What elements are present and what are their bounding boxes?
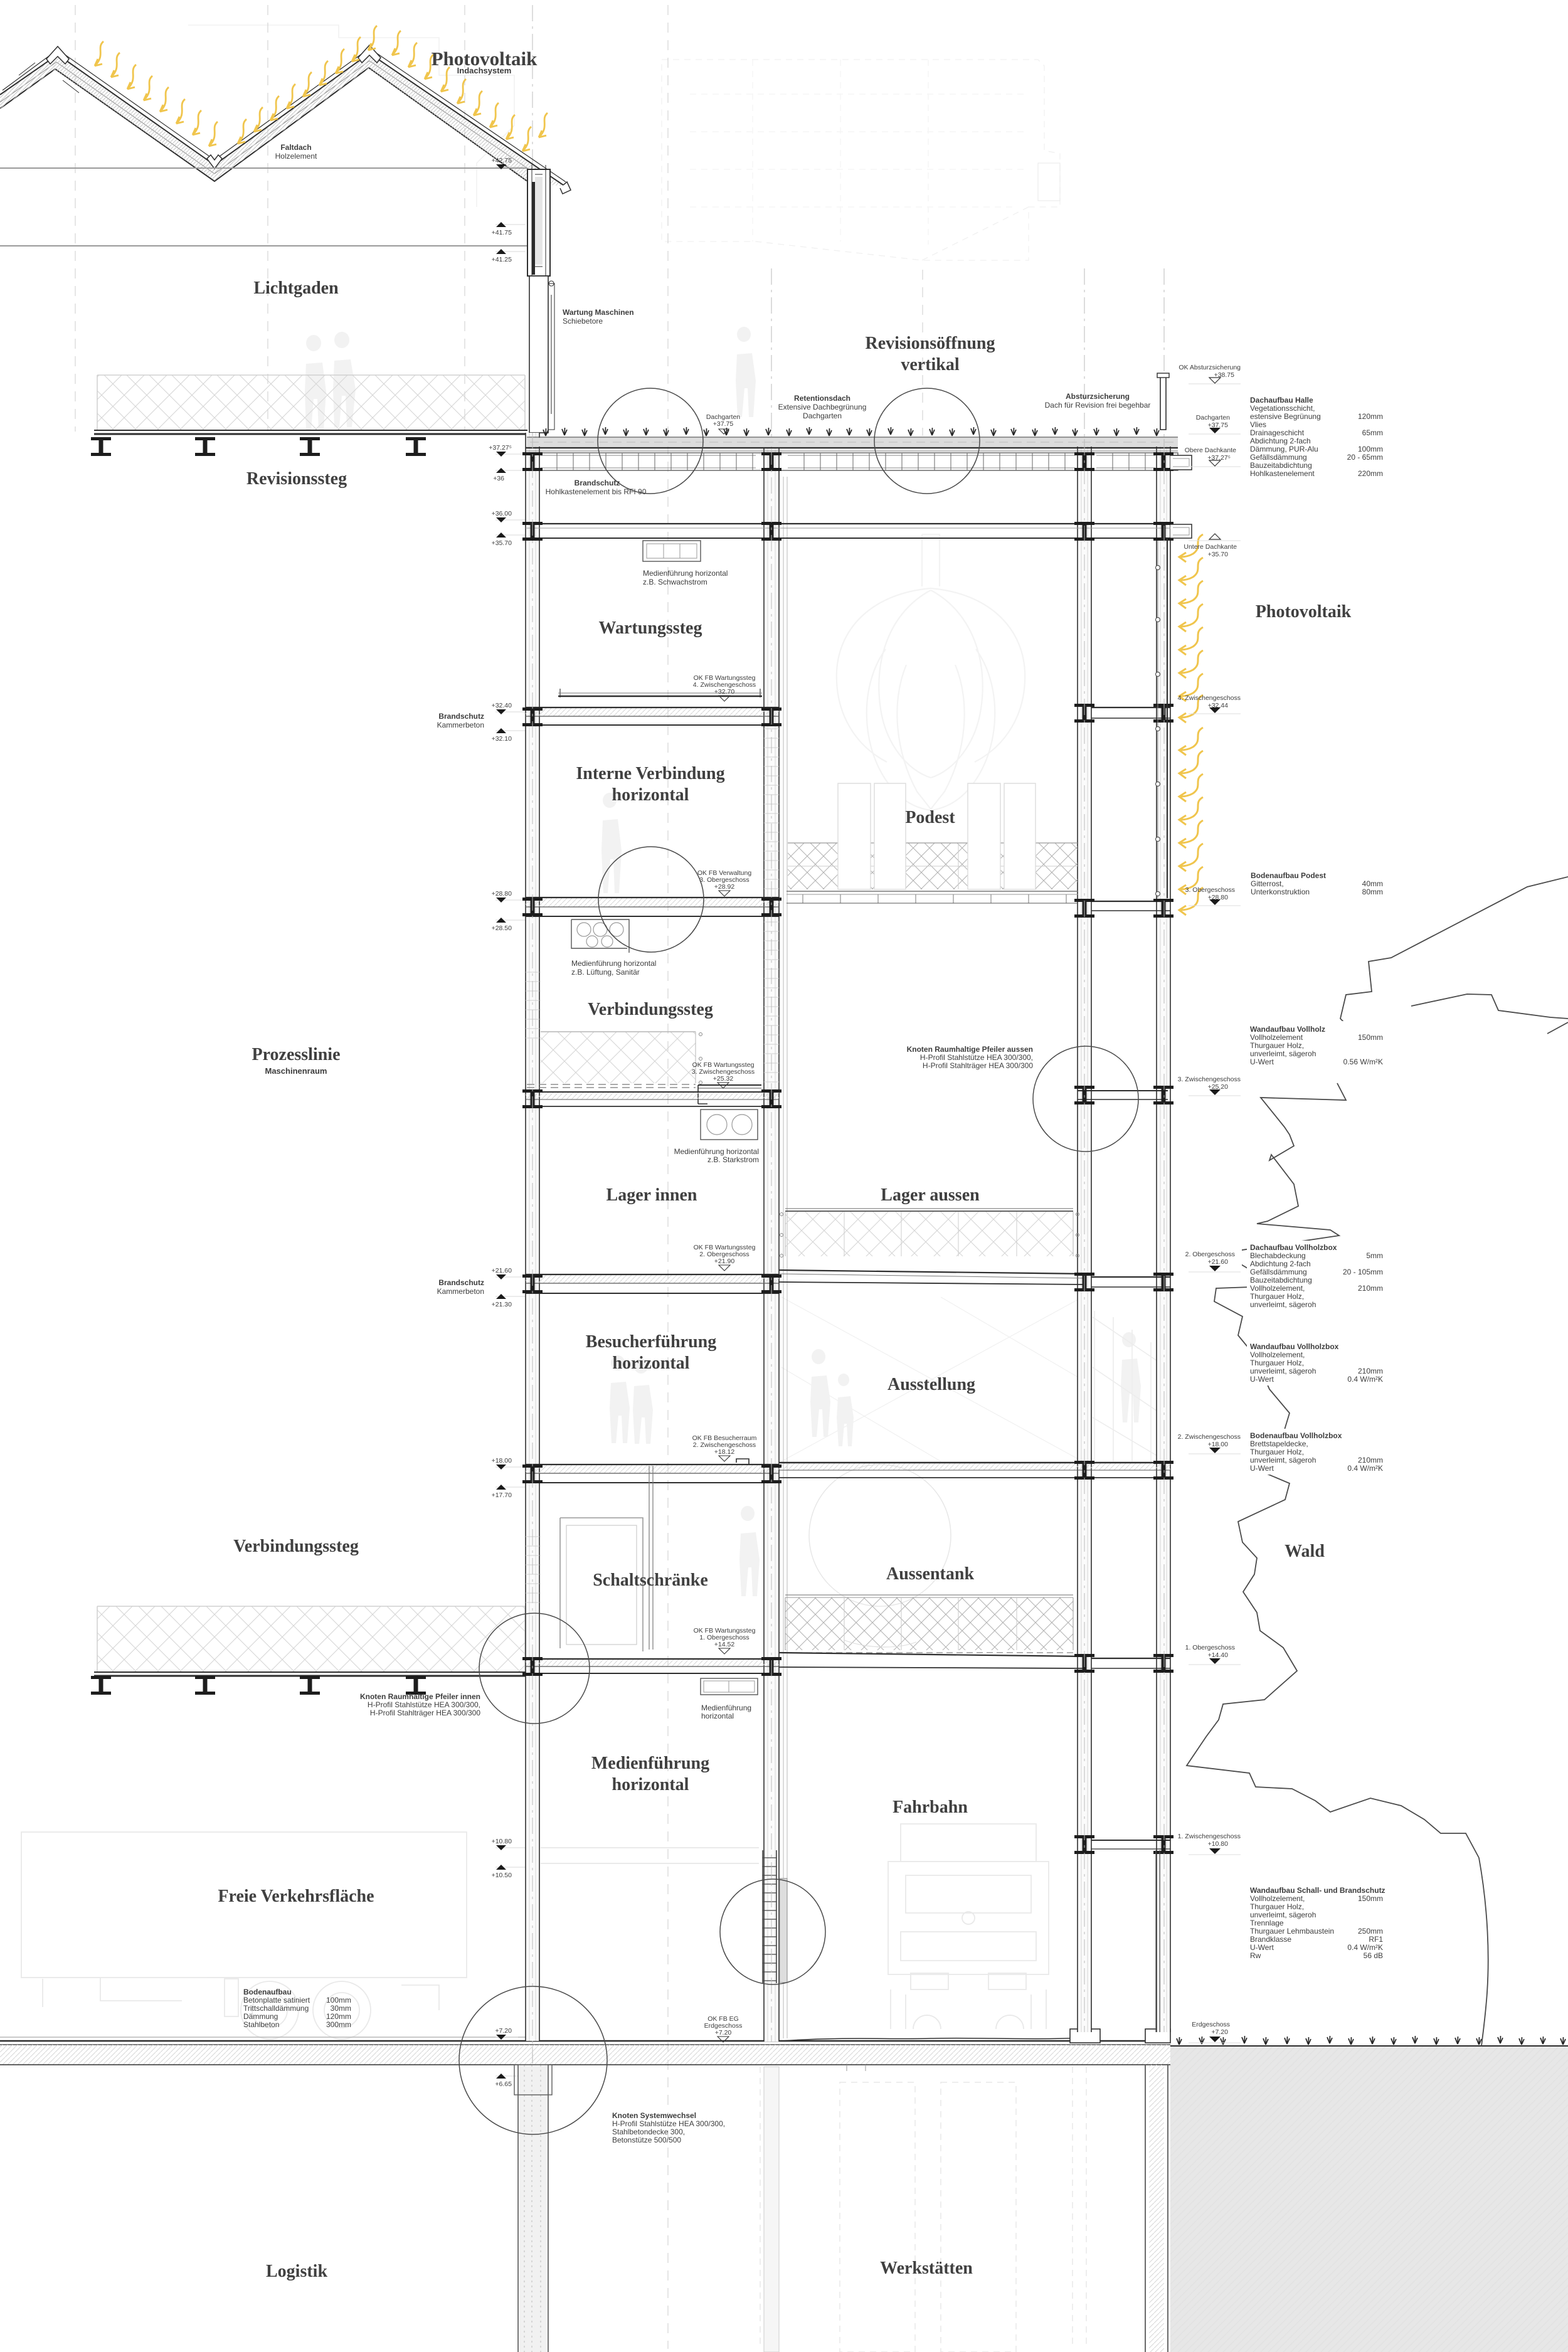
svg-text:U-Wert: U-Wert — [1250, 1057, 1274, 1066]
svg-text:unverleimt, sägeroh: unverleimt, sägeroh — [1250, 1456, 1316, 1465]
svg-text:unverleimt, sägeroh: unverleimt, sägeroh — [1250, 1300, 1316, 1309]
svg-text:Lichtgaden: Lichtgaden — [253, 278, 339, 298]
svg-text:H-Profil Stahlträger HEA 300/3: H-Profil Stahlträger HEA 300/300 — [370, 1708, 480, 1717]
svg-text:+36: +36 — [493, 475, 504, 482]
svg-text:+41.25: +41.25 — [492, 256, 512, 263]
svg-text:+10.80: +10.80 — [1208, 1840, 1229, 1848]
svg-text:z.B. Schwachstrom: z.B. Schwachstrom — [643, 578, 707, 586]
svg-text:Holzelement: Holzelement — [275, 152, 317, 161]
svg-text:+32.70: +32.70 — [714, 688, 735, 696]
svg-text:+37.27⁵: +37.27⁵ — [1207, 454, 1231, 462]
svg-text:Gefällsdämmung: Gefällsdämmung — [1250, 1268, 1307, 1276]
svg-text:Kammerbeton: Kammerbeton — [437, 1287, 484, 1296]
svg-text:Medienführung: Medienführung — [701, 1703, 751, 1712]
svg-text:unverleimt, sägeroh: unverleimt, sägeroh — [1250, 1367, 1316, 1375]
svg-text:Bauzeitabdichtung: Bauzeitabdichtung — [1250, 461, 1312, 470]
svg-text:Stahlbetondecke 300,: Stahlbetondecke 300, — [612, 2127, 685, 2136]
svg-text:Brettstapeldecke,: Brettstapeldecke, — [1250, 1439, 1308, 1448]
svg-text:+32.40: +32.40 — [492, 702, 512, 709]
svg-text:unverleimt, sägeroh: unverleimt, sägeroh — [1250, 1910, 1316, 1919]
svg-text:estensive Begrünung: estensive Begrünung — [1250, 412, 1321, 421]
svg-text:1. Zwischengeschoss: 1. Zwischengeschoss — [1178, 1833, 1241, 1840]
svg-text:Thurgauer Holz,: Thurgauer Holz, — [1250, 1041, 1304, 1050]
svg-text:56 dB: 56 dB — [1364, 1951, 1383, 1960]
svg-text:2. Zwischengeschoss: 2. Zwischengeschoss — [1178, 1433, 1241, 1441]
svg-text:+38.75: +38.75 — [1214, 371, 1235, 379]
svg-text:OK Absturzsicherung: OK Absturzsicherung — [1179, 364, 1241, 371]
svg-text:+32.10: +32.10 — [492, 735, 512, 743]
svg-text:3. Obergeschoss: 3. Obergeschoss — [1185, 886, 1235, 894]
svg-text:+28.80: +28.80 — [492, 890, 512, 898]
svg-text:Knoten Raumhaltige Pfeiler aus: Knoten Raumhaltige Pfeiler aussen — [907, 1045, 1033, 1054]
svg-text:+28.92: +28.92 — [714, 883, 735, 891]
svg-text:+25.20: +25.20 — [1208, 1083, 1229, 1091]
svg-text:+28.80: +28.80 — [1208, 894, 1229, 901]
svg-text:+35.70: +35.70 — [1208, 551, 1229, 558]
svg-text:Vollholzelement: Vollholzelement — [1250, 1033, 1303, 1042]
svg-text:250mm: 250mm — [1358, 1927, 1383, 1936]
svg-text:+28.50: +28.50 — [492, 924, 512, 932]
svg-text:Brandschutz: Brandschutz — [438, 1278, 484, 1287]
svg-text:+7.20: +7.20 — [715, 2029, 732, 2037]
svg-text:+7.20: +7.20 — [495, 2027, 512, 2035]
svg-text:3. Zwischengeschoss: 3. Zwischengeschoss — [1178, 1076, 1241, 1083]
svg-text:horizontal: horizontal — [612, 785, 689, 805]
svg-text:Bodenaufbau Vollholzbox: Bodenaufbau Vollholzbox — [1250, 1431, 1342, 1440]
svg-text:Stahlbeton: Stahlbeton — [243, 2020, 279, 2029]
svg-text:+35.70: +35.70 — [492, 539, 512, 547]
svg-text:Revisionssteg: Revisionssteg — [246, 469, 347, 489]
svg-text:+21.30: +21.30 — [492, 1301, 512, 1308]
svg-text:Drainageschicht: Drainageschicht — [1250, 428, 1305, 437]
svg-text:Hohlkastenelement: Hohlkastenelement — [1250, 469, 1315, 478]
svg-text:Freie Verkehrsfläche: Freie Verkehrsfläche — [218, 1887, 374, 1906]
svg-text:20 - 65mm: 20 - 65mm — [1347, 453, 1383, 462]
svg-text:horizontal: horizontal — [701, 1712, 734, 1720]
svg-text:Logistik: Logistik — [266, 2262, 327, 2281]
svg-text:Thurgauer Lehmbaustein: Thurgauer Lehmbaustein — [1250, 1927, 1334, 1936]
svg-text:Lager aussen: Lager aussen — [881, 1185, 980, 1205]
svg-text:Indachsystem: Indachsystem — [457, 66, 512, 75]
svg-text:+14.52: +14.52 — [714, 1641, 735, 1648]
svg-text:Prozesslinie: Prozesslinie — [252, 1045, 340, 1064]
svg-text:Obere Dachkante: Obere Dachkante — [1185, 447, 1236, 454]
svg-text:65mm: 65mm — [1362, 428, 1383, 437]
svg-text:+21.60: +21.60 — [492, 1267, 512, 1274]
svg-text:Bodenaufbau: Bodenaufbau — [243, 1988, 292, 1996]
svg-text:+6.65: +6.65 — [495, 2080, 512, 2088]
svg-text:0.56 W/m²K: 0.56 W/m²K — [1343, 1057, 1383, 1066]
svg-text:5mm: 5mm — [1366, 1251, 1383, 1260]
svg-text:Untere Dachkante: Untere Dachkante — [1184, 543, 1237, 551]
svg-text:+10.50: +10.50 — [492, 1872, 512, 1879]
svg-text:+32.44: +32.44 — [1208, 702, 1229, 709]
svg-text:Dach für Revision frei begehba: Dach für Revision frei begehbar — [1045, 401, 1151, 410]
svg-text:Extensive Dachbegrünung: Extensive Dachbegrünung — [778, 403, 867, 411]
svg-text:+7.20: +7.20 — [1211, 2028, 1228, 2036]
svg-text:220mm: 220mm — [1358, 469, 1383, 478]
svg-text:0.4 W/m²K: 0.4 W/m²K — [1347, 1375, 1383, 1384]
svg-text:+41.75: +41.75 — [492, 229, 512, 236]
svg-text:Brandschutz: Brandschutz — [575, 479, 620, 487]
svg-text:Thurgauer Holz,: Thurgauer Holz, — [1250, 1902, 1304, 1911]
svg-text:Thurgauer Holz,: Thurgauer Holz, — [1250, 1448, 1304, 1456]
svg-text:RF1: RF1 — [1369, 1935, 1383, 1944]
svg-text:U-Wert: U-Wert — [1250, 1464, 1274, 1473]
svg-text:Absturzsicherung: Absturzsicherung — [1066, 392, 1130, 401]
svg-text:H-Profil Stahlstütze HEA 300/3: H-Profil Stahlstütze HEA 300/300, — [612, 2119, 725, 2128]
svg-text:Interne Verbindung: Interne Verbindung — [576, 764, 724, 783]
svg-text:120mm: 120mm — [326, 2012, 351, 2021]
svg-text:+25.32: +25.32 — [713, 1075, 734, 1083]
svg-text:Betonplatte satiniert: Betonplatte satiniert — [243, 1996, 310, 2005]
svg-text:Knoten Raumhaltige Pfeiler inn: Knoten Raumhaltige Pfeiler innen — [360, 1692, 480, 1701]
svg-text:Fahrbahn: Fahrbahn — [893, 1798, 968, 1817]
svg-text:Abdichtung 2-fach: Abdichtung 2-fach — [1250, 437, 1311, 445]
svg-text:H-Profil Stahlstütze HEA 300/3: H-Profil Stahlstütze HEA 300/300, — [920, 1053, 1033, 1062]
svg-text:Blechabdeckung: Blechabdeckung — [1250, 1251, 1306, 1260]
svg-text:Ausstellung: Ausstellung — [887, 1375, 975, 1394]
svg-text:1. Obergeschoss: 1. Obergeschoss — [1185, 1644, 1235, 1651]
svg-text:Podest: Podest — [905, 808, 955, 827]
svg-text:0.4 W/m²K: 0.4 W/m²K — [1347, 1464, 1383, 1473]
svg-text:Dachgarten: Dachgarten — [803, 411, 842, 420]
svg-text:Verbindungssteg: Verbindungssteg — [588, 1000, 713, 1019]
svg-text:Vollholzelement,: Vollholzelement, — [1250, 1284, 1305, 1293]
svg-text:H-Profil Stahlstütze HEA 300/3: H-Profil Stahlstütze HEA 300/300, — [368, 1700, 480, 1709]
svg-text:30mm: 30mm — [331, 2004, 351, 2013]
svg-text:2. Obergeschoss: 2. Obergeschoss — [1185, 1251, 1235, 1258]
svg-text:Wandaufbau Vollholz: Wandaufbau Vollholz — [1250, 1025, 1325, 1034]
svg-text:Vollholzelement,: Vollholzelement, — [1250, 1894, 1305, 1903]
svg-text:210mm: 210mm — [1358, 1456, 1383, 1465]
svg-text:Medienführung horizontal: Medienführung horizontal — [571, 959, 656, 968]
svg-text:Besucherführung: Besucherführung — [586, 1332, 716, 1352]
svg-text:Trennlage: Trennlage — [1250, 1919, 1284, 1927]
svg-text:150mm: 150mm — [1358, 1894, 1383, 1903]
svg-text:Gefällsdämmung: Gefällsdämmung — [1250, 453, 1307, 462]
svg-text:20 - 105mm: 20 - 105mm — [1343, 1268, 1383, 1276]
svg-text:Verbindungssteg: Verbindungssteg — [233, 1537, 359, 1556]
svg-text:Vollholzelement,: Vollholzelement, — [1250, 1350, 1305, 1359]
svg-text:Dachgarten: Dachgarten — [1196, 414, 1230, 421]
svg-text:Dachaufbau Vollholzbox: Dachaufbau Vollholzbox — [1250, 1243, 1337, 1252]
svg-text:z.B. Starkstrom: z.B. Starkstrom — [707, 1155, 759, 1164]
svg-text:Wandaufbau Vollholzbox: Wandaufbau Vollholzbox — [1250, 1342, 1339, 1351]
svg-text:Faltdach: Faltdach — [280, 143, 311, 152]
svg-text:Dämmung: Dämmung — [243, 2012, 278, 2021]
svg-text:Medienführung horizontal: Medienführung horizontal — [674, 1147, 759, 1156]
svg-text:Retentionsdach: Retentionsdach — [794, 394, 850, 403]
svg-text:Thurgauer Holz,: Thurgauer Holz, — [1250, 1292, 1304, 1301]
svg-text:Brandklasse: Brandklasse — [1250, 1935, 1291, 1944]
svg-text:Aussentank: Aussentank — [886, 1564, 974, 1584]
svg-text:0.4 W/m²K: 0.4 W/m²K — [1347, 1943, 1383, 1952]
svg-text:Medienführung horizontal: Medienführung horizontal — [643, 569, 728, 578]
svg-text:210mm: 210mm — [1358, 1284, 1383, 1293]
svg-text:Rw: Rw — [1250, 1951, 1261, 1960]
svg-text:40mm: 40mm — [1362, 879, 1383, 888]
svg-text:Schaltschränke: Schaltschränke — [593, 1571, 708, 1590]
svg-text:210mm: 210mm — [1358, 1367, 1383, 1375]
svg-text:Maschinenraum: Maschinenraum — [265, 1066, 327, 1076]
svg-text:+37.27⁵: +37.27⁵ — [489, 444, 512, 452]
svg-text:+14.40: +14.40 — [1208, 1651, 1229, 1659]
svg-text:Betonstütze 500/500: Betonstütze 500/500 — [612, 2136, 681, 2144]
svg-text:Trittschalldämmung: Trittschalldämmung — [243, 2004, 309, 2013]
svg-text:150mm: 150mm — [1358, 1033, 1383, 1042]
svg-text:80mm: 80mm — [1362, 887, 1383, 896]
svg-text:Wandaufbau Schall- und Brandsc: Wandaufbau Schall- und Brandschutz — [1250, 1886, 1385, 1895]
svg-text:vertikal: vertikal — [901, 355, 960, 374]
svg-text:+37.75: +37.75 — [713, 420, 734, 428]
svg-text:+42.75: +42.75 — [492, 157, 512, 164]
svg-text:+10.80: +10.80 — [492, 1838, 512, 1845]
svg-text:Wald: Wald — [1285, 1542, 1325, 1561]
svg-text:Thurgauer Holz,: Thurgauer Holz, — [1250, 1359, 1304, 1367]
svg-text:U-Wert: U-Wert — [1250, 1943, 1274, 1952]
svg-text:Werkstätten: Werkstätten — [880, 2259, 973, 2278]
svg-text:Bodenaufbau Podest: Bodenaufbau Podest — [1251, 871, 1326, 880]
svg-text:Bauzeitabdichtung: Bauzeitabdichtung — [1250, 1276, 1312, 1285]
svg-text:Knoten Systemwechsel: Knoten Systemwechsel — [612, 2111, 696, 2120]
svg-text:Dämmung, PUR-Alu: Dämmung, PUR-Alu — [1250, 445, 1318, 453]
svg-text:100mm: 100mm — [326, 1996, 351, 2005]
svg-text:U-Wert: U-Wert — [1250, 1375, 1274, 1384]
svg-text:H-Profil Stahlträger HEA 300/3: H-Profil Stahlträger HEA 300/300 — [923, 1061, 1033, 1070]
svg-text:Vlies: Vlies — [1250, 420, 1266, 429]
svg-text:+17.70: +17.70 — [492, 1491, 512, 1499]
svg-text:Wartung Maschinen: Wartung Maschinen — [563, 308, 634, 317]
svg-text:z.B. Lüftung, Sanitär: z.B. Lüftung, Sanitär — [571, 968, 640, 977]
svg-text:Dachaufbau Halle: Dachaufbau Halle — [1250, 396, 1313, 405]
svg-text:Photovoltaik: Photovoltaik — [1256, 602, 1352, 622]
svg-text:4. Zwischengeschoss: 4. Zwischengeschoss — [1178, 694, 1241, 702]
svg-text:Abdichtung 2-fach: Abdichtung 2-fach — [1250, 1259, 1311, 1268]
svg-text:Medienführung: Medienführung — [591, 1754, 709, 1773]
svg-text:+36.00: +36.00 — [492, 510, 512, 517]
svg-text:+37.75: +37.75 — [1208, 421, 1229, 429]
svg-text:120mm: 120mm — [1358, 412, 1383, 421]
svg-text:Vegetationsschicht,: Vegetationsschicht, — [1250, 404, 1315, 413]
svg-text:Unterkonstruktion: Unterkonstruktion — [1251, 887, 1310, 896]
svg-text:Lager innen: Lager innen — [607, 1185, 697, 1205]
svg-text:unverleimt, sägeroh: unverleimt, sägeroh — [1250, 1049, 1316, 1058]
svg-text:300mm: 300mm — [326, 2020, 351, 2029]
svg-text:Brandschutz: Brandschutz — [438, 712, 484, 721]
svg-text:+18.12: +18.12 — [714, 1448, 735, 1456]
svg-text:100mm: 100mm — [1358, 445, 1383, 453]
svg-text:Wartungssteg: Wartungssteg — [599, 618, 702, 638]
svg-text:+21.90: +21.90 — [714, 1258, 735, 1265]
svg-text:Erdgeschoss: Erdgeschoss — [1192, 2021, 1230, 2028]
svg-text:Revisionsöffnung: Revisionsöffnung — [866, 334, 995, 353]
svg-text:horizontal: horizontal — [613, 1353, 690, 1373]
svg-text:horizontal: horizontal — [612, 1775, 689, 1794]
svg-text:Kammerbeton: Kammerbeton — [437, 721, 484, 729]
svg-text:+18.00: +18.00 — [492, 1457, 512, 1465]
svg-text:Schiebetore: Schiebetore — [563, 317, 603, 326]
svg-text:Hohlkastenelement bis RFI 90: Hohlkastenelement bis RFI 90 — [546, 487, 647, 496]
svg-text:Gitterrost,: Gitterrost, — [1251, 879, 1284, 888]
svg-text:+18.00: +18.00 — [1208, 1441, 1229, 1448]
svg-text:+21.60: +21.60 — [1208, 1258, 1229, 1266]
